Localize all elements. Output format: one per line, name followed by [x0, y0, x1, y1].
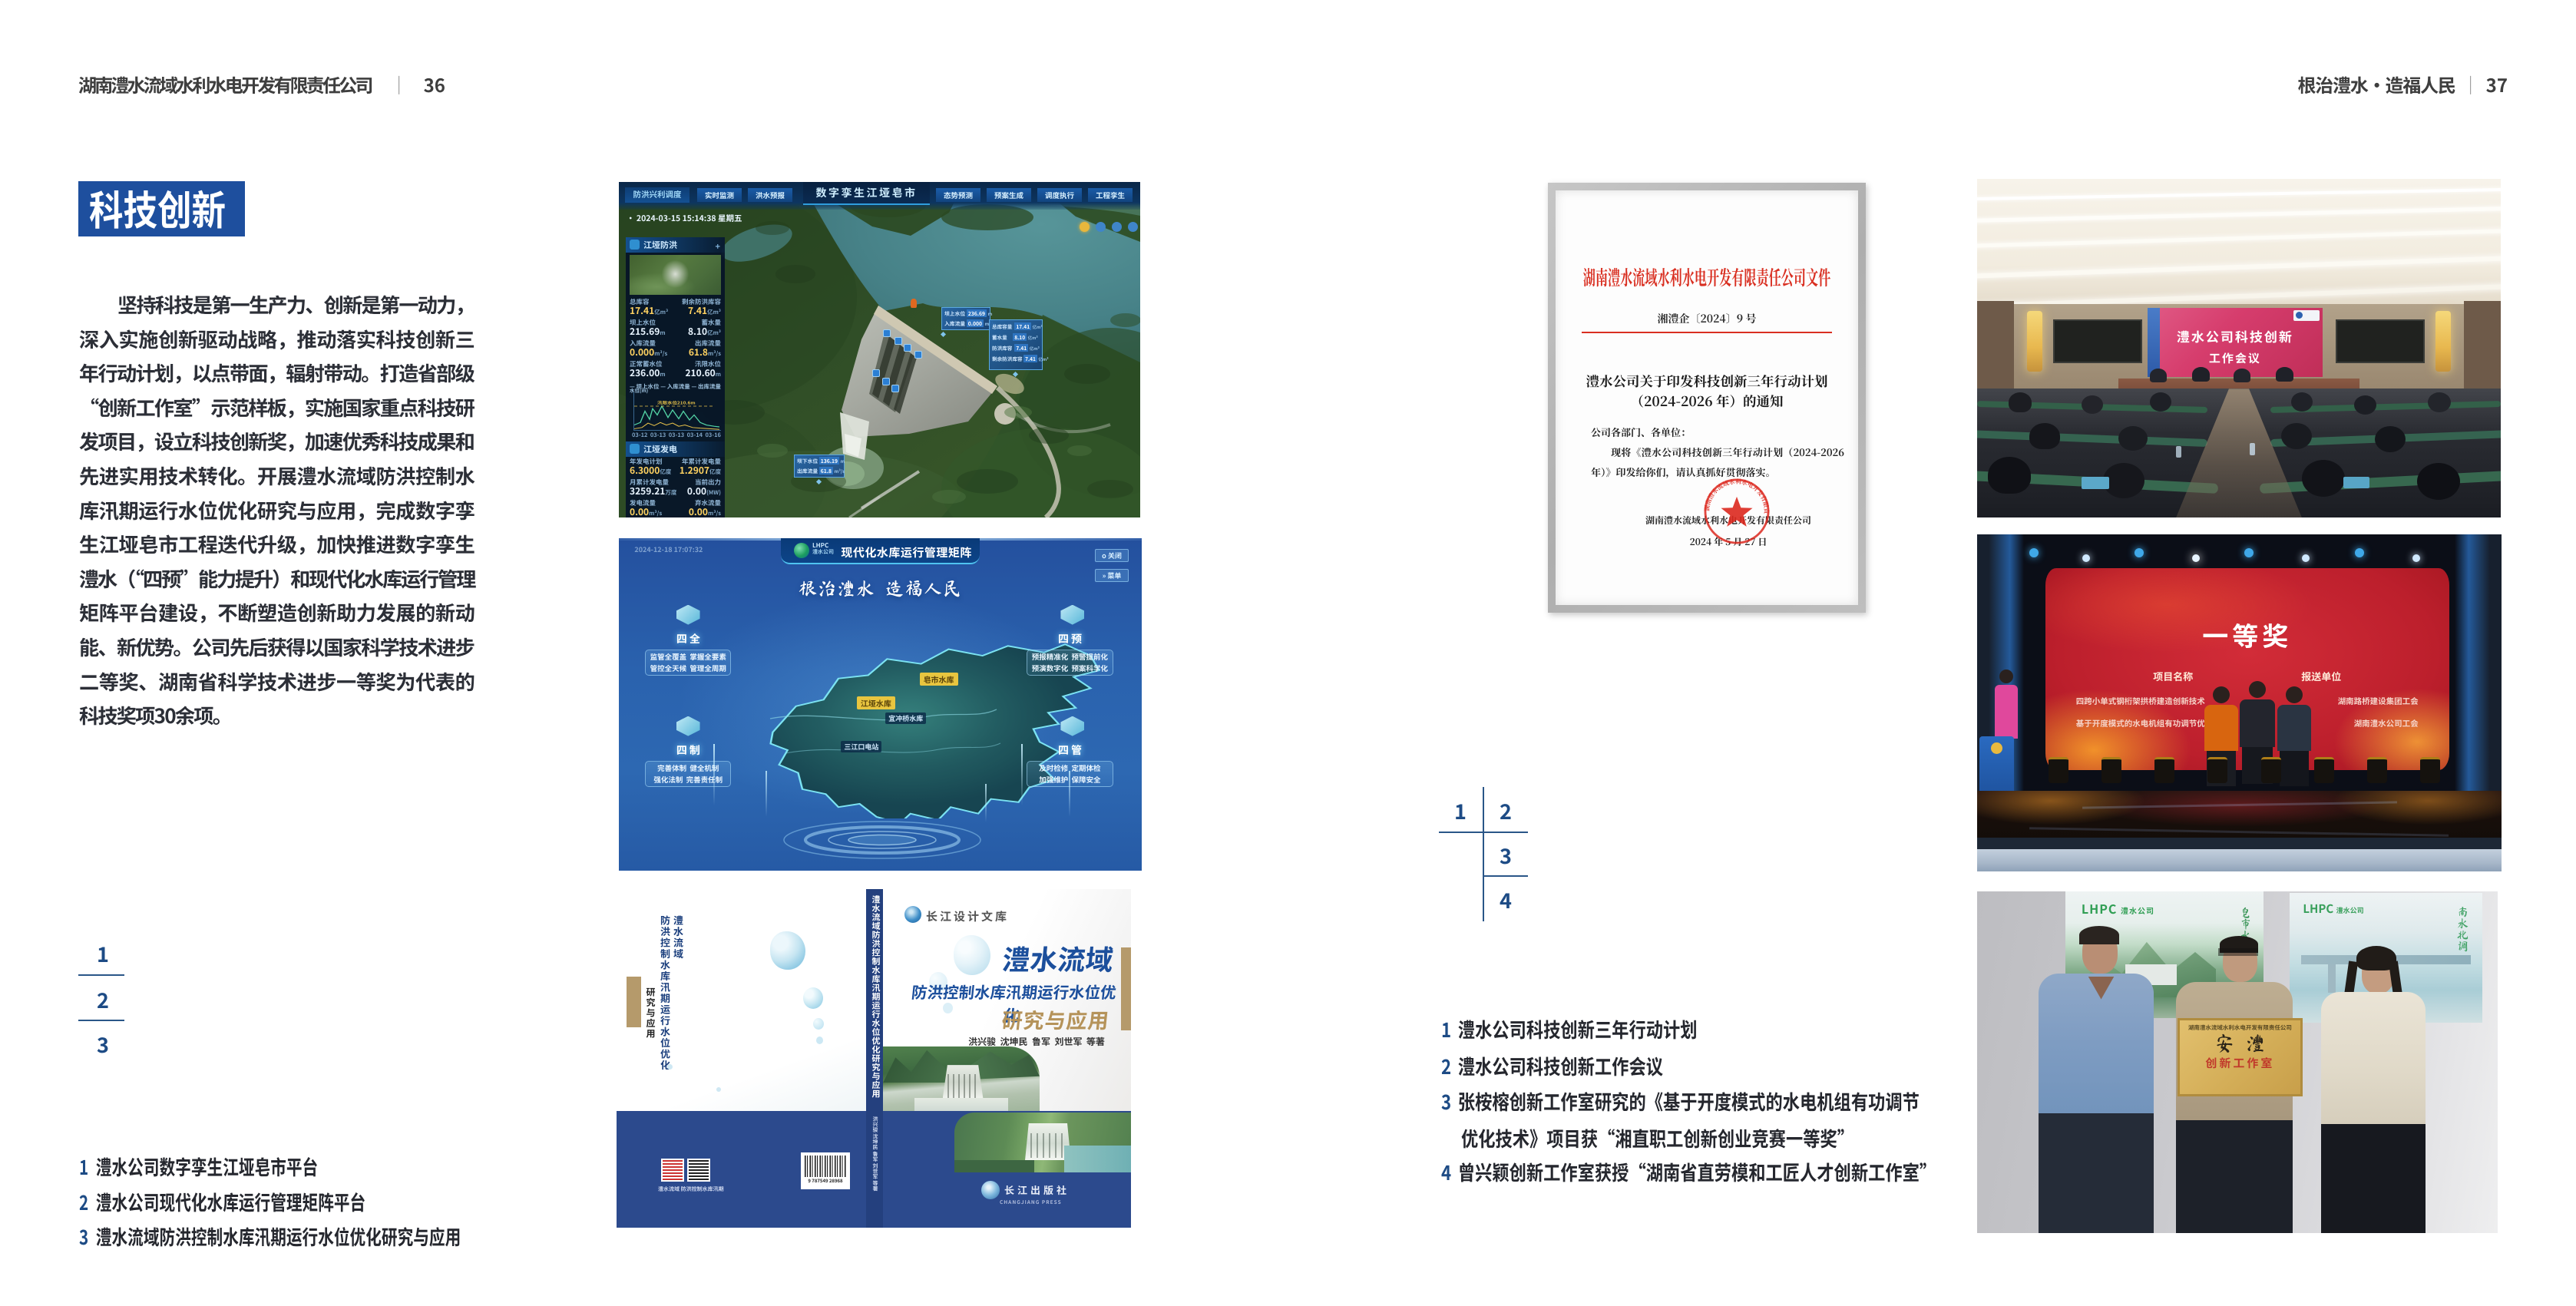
svg-text:汛限水位210.6m: 汛限水位210.6m [657, 399, 696, 405]
